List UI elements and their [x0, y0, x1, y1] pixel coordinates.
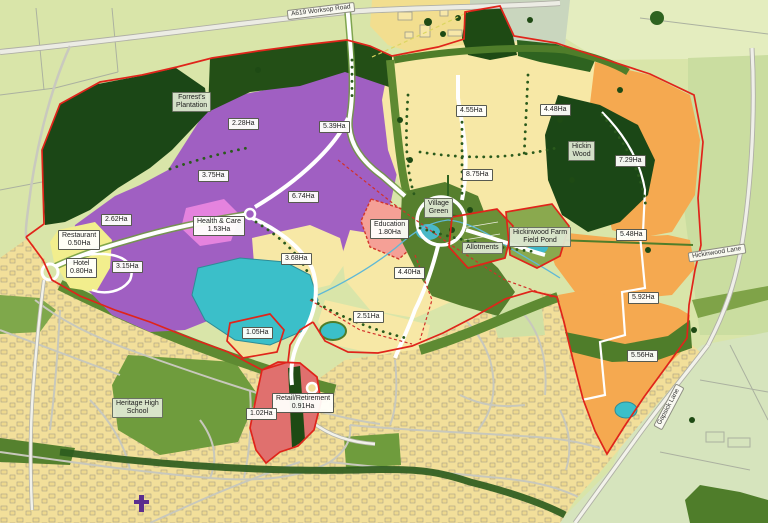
parcel-label-2-28ha: 2.28Ha	[228, 118, 259, 130]
parcel-label-restaurant: Restaurant 0.50Ha	[58, 230, 100, 250]
parcel-label-3-68ha: 3.68Ha	[281, 253, 312, 265]
place-label-heritage-high-school: Heritage High School	[112, 398, 163, 418]
parcel-label-5-39ha: 5.39Ha	[319, 121, 350, 133]
mini-roundabout	[245, 209, 255, 219]
parcel-label-education: Education 1.80Ha	[370, 219, 409, 239]
parcel-label-4-40ha: 4.40Ha	[394, 267, 425, 279]
parcel-label-7-29ha: 7.29Ha	[615, 155, 646, 167]
parcel-label-1-05ha: 1.05Ha	[242, 327, 273, 339]
masterplan-map: A619 Worksop Road Hickinwood Lane Gapsic…	[0, 0, 768, 523]
parcel-label-4-48ha: 4.48Ha	[540, 104, 571, 116]
parcel-label-health-care: Health & Care 1.53Ha	[193, 216, 245, 236]
parcel-label-5-56ha: 5.56Ha	[627, 350, 658, 362]
place-label-village-green: Village Green	[424, 198, 453, 218]
parcel-label-2-51ha: 2.51Ha	[353, 311, 384, 323]
parcel-label-3-75ha: 3.75Ha	[198, 170, 229, 182]
pond-central	[320, 322, 346, 340]
parcel-label-3-15ha: 3.15Ha	[112, 261, 143, 273]
roundabout-town	[307, 383, 317, 393]
parcel-label-2-62ha: 2.62Ha	[101, 214, 132, 226]
place-label-forrests-plantation: Forrest's Plantation	[172, 92, 211, 112]
parcel-label-retail-retirement: Retail/Retirement 0.91Ha	[272, 393, 334, 413]
parcel-label-hotel: Hotel 0.80Ha	[66, 258, 97, 278]
parcel-label-6-74ha: 6.74Ha	[288, 191, 319, 203]
parcel-label-5-92ha: 5.92Ha	[628, 292, 659, 304]
place-label-allotments: Allotments	[462, 242, 503, 254]
parcel-label-5-48ha: 5.48Ha	[616, 229, 647, 241]
pond-south-east	[615, 402, 637, 418]
tree-clump	[650, 11, 664, 25]
parcel-label-1-02ha: 1.02Ha	[246, 408, 277, 420]
parcel-label-8-75ha: 8.75Ha	[462, 169, 493, 181]
place-label-hickin-wood: Hickin Wood	[568, 141, 595, 161]
parcel-label-4-55ha: 4.55Ha	[456, 105, 487, 117]
place-label-hickinwood-farm-field-pond: Hickinwood Farm Field Pond	[509, 227, 571, 247]
